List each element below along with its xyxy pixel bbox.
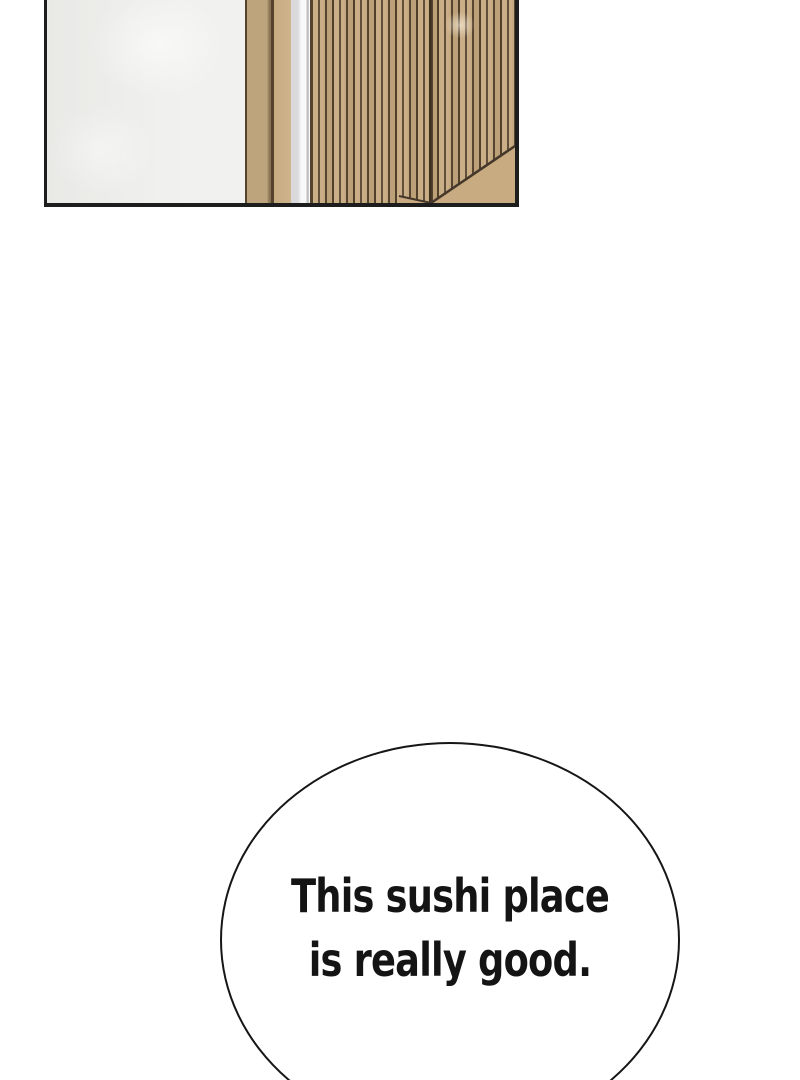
comic-panel [44,0,519,207]
comic-page: This sushi place is really good. [0,0,800,1080]
speech-bubble: This sushi place is really good. [220,742,680,1080]
speech-text: This sushi place is really good. [268,864,633,992]
wood-counter-corner [47,0,515,203]
speech-text-line2: is really good. [268,928,633,992]
speech-text-line1: This sushi place [268,864,633,928]
